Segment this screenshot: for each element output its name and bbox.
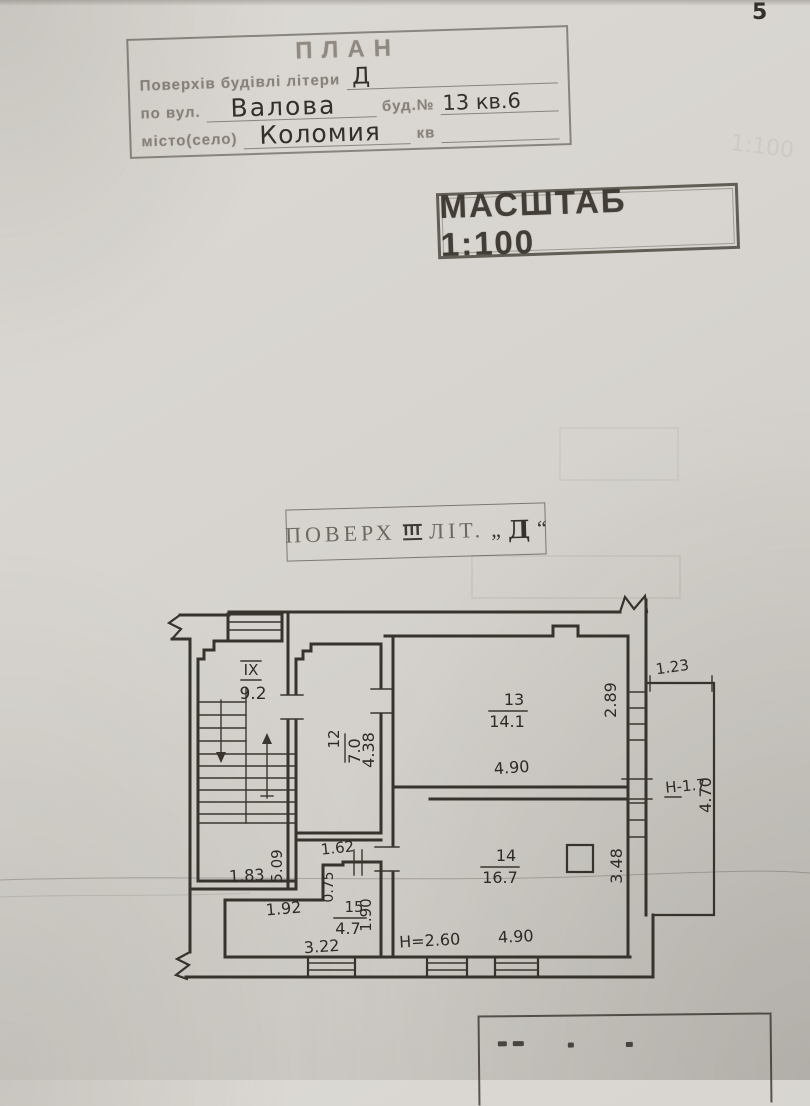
dim-room14-ceiling-height: Н=2.60	[399, 929, 461, 951]
stair-down-arrow	[216, 700, 226, 763]
window-room13-right	[628, 692, 646, 740]
dim-stair-landing: 1.83	[228, 865, 265, 886]
svg-text:1:100: 1:100	[729, 131, 795, 164]
dim-hall-notch: 0.75	[321, 871, 337, 902]
room-13-number: 13	[504, 690, 524, 709]
wall-break-top-left	[169, 615, 181, 639]
room-14-area: 16.7	[482, 868, 518, 887]
plan-walls	[169, 596, 714, 979]
room-13-area: 14.1	[489, 712, 525, 731]
scanned-floor-plan-page: { "page": { "number": "5" }, "plan_stamp…	[0, 0, 810, 1080]
window-stairwell-top	[228, 614, 282, 641]
dim-balcony-width: 1.23	[655, 656, 691, 678]
paper-crease	[0, 893, 250, 897]
bleed-through-ghosts: 1:100	[472, 131, 795, 598]
dim-room12-depth: 4.38	[359, 732, 378, 768]
dim-room14-width: 4.90	[497, 926, 534, 947]
dim-balcony-depth: 4.70	[696, 777, 715, 813]
room-14-number: 14	[496, 846, 516, 865]
paper-crease	[0, 871, 810, 880]
room12-top-wall	[296, 644, 381, 659]
room-ix-area: 9.2	[239, 684, 266, 704]
dim-stair-flight: 5.09	[268, 849, 286, 882]
dim-hall-passage: 1.62	[320, 837, 355, 858]
wall-break-bottom-left	[176, 952, 190, 979]
room-12-number: 12	[325, 729, 343, 748]
dim-hall-right: 1.90	[357, 898, 375, 931]
room13-top-wall	[385, 626, 628, 636]
dim-room13-right: 2.89	[601, 682, 620, 718]
room-ix-number: IX	[244, 661, 259, 679]
room-label-13: 13 14.1	[489, 690, 527, 731]
floor-plan-drawing: 1:100	[0, 0, 810, 1080]
staircase	[198, 688, 294, 823]
dim-hall-bottom-width: 3.22	[303, 936, 340, 957]
dim-room14-right: 3.48	[607, 848, 626, 884]
dim-room13-width: 4.90	[493, 757, 530, 778]
dimension-labels: 4.38 4.90 2.89 1.23 Н-1.7 4.70 3.48 Н=2.…	[228, 656, 715, 957]
room-label-stairwell: IX 9.2	[239, 661, 266, 704]
dim-hall-top-width: 1.92	[265, 898, 302, 920]
stove-symbol	[567, 845, 593, 872]
windows-bottom-wall	[308, 957, 538, 977]
window-room14-right	[628, 803, 646, 837]
room-label-14: 14 16.7	[481, 846, 519, 887]
